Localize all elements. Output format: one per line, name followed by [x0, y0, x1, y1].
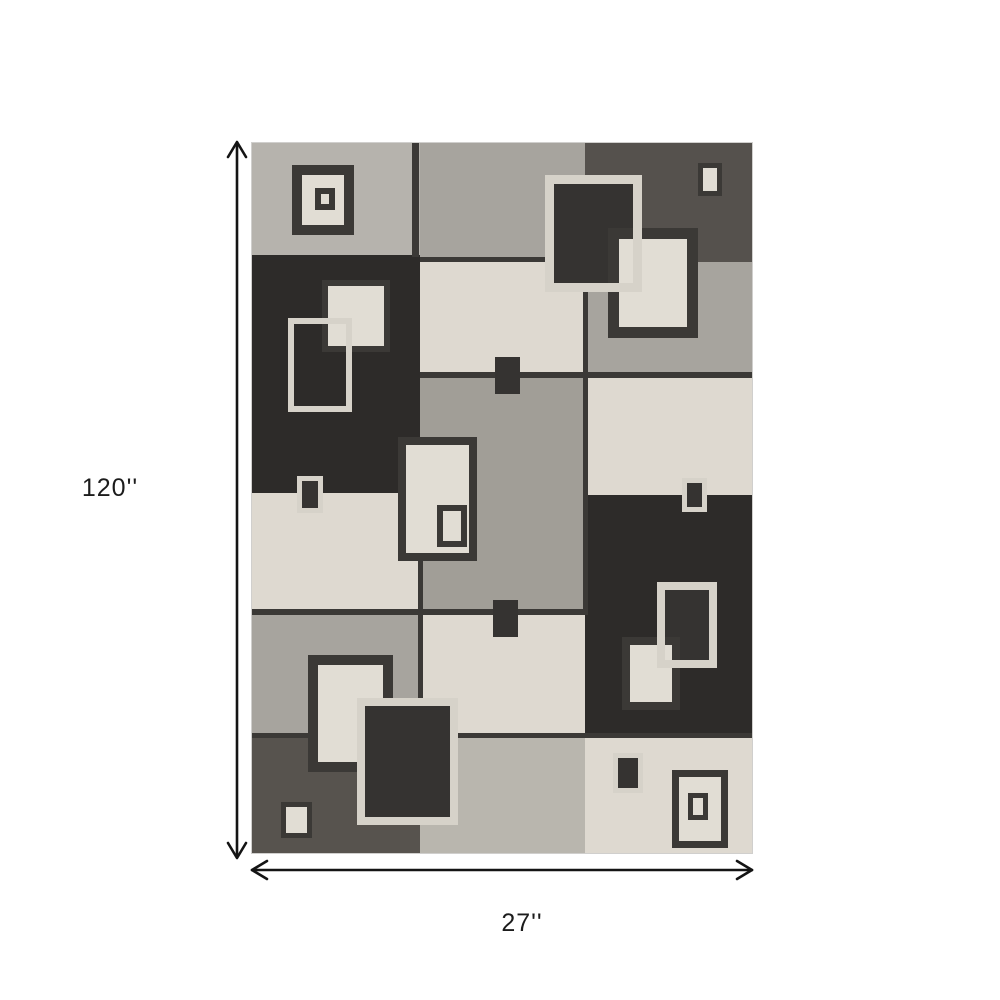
rug-motif-m10 — [493, 600, 518, 637]
rug-motif-m7 — [297, 476, 323, 513]
rug-motif-m14b — [357, 698, 458, 825]
rug-motif-m1-inner — [315, 188, 335, 210]
rug-motif-m12-outline — [657, 582, 717, 668]
rug-motif-m11 — [682, 478, 707, 512]
width-dimension-arrow — [244, 858, 760, 882]
rug-motif-m16 — [613, 753, 643, 793]
rug-motif-m3-outline — [545, 175, 642, 292]
rug-motif-m8 — [495, 357, 520, 394]
rug-motif-m5-outline — [288, 318, 352, 412]
rug-motif-m15 — [281, 802, 312, 838]
rug-motif-m9-inner — [437, 505, 467, 547]
rug-patch-a3 — [252, 493, 420, 611]
width-label: 27'' — [467, 909, 577, 938]
rug-patch-c3 — [585, 377, 752, 495]
rug-image — [252, 143, 752, 853]
rug-seam-a1-b1 — [412, 143, 419, 257]
height-label: 120'' — [55, 474, 165, 503]
rug-motif-m2 — [698, 163, 722, 196]
rug-dimension-diagram: 120'' 27'' — [0, 0, 1000, 1000]
rug-seam-b-c-vert — [583, 260, 588, 615]
rug-motif-m17-inner — [688, 793, 708, 820]
height-dimension-arrow — [225, 135, 249, 865]
